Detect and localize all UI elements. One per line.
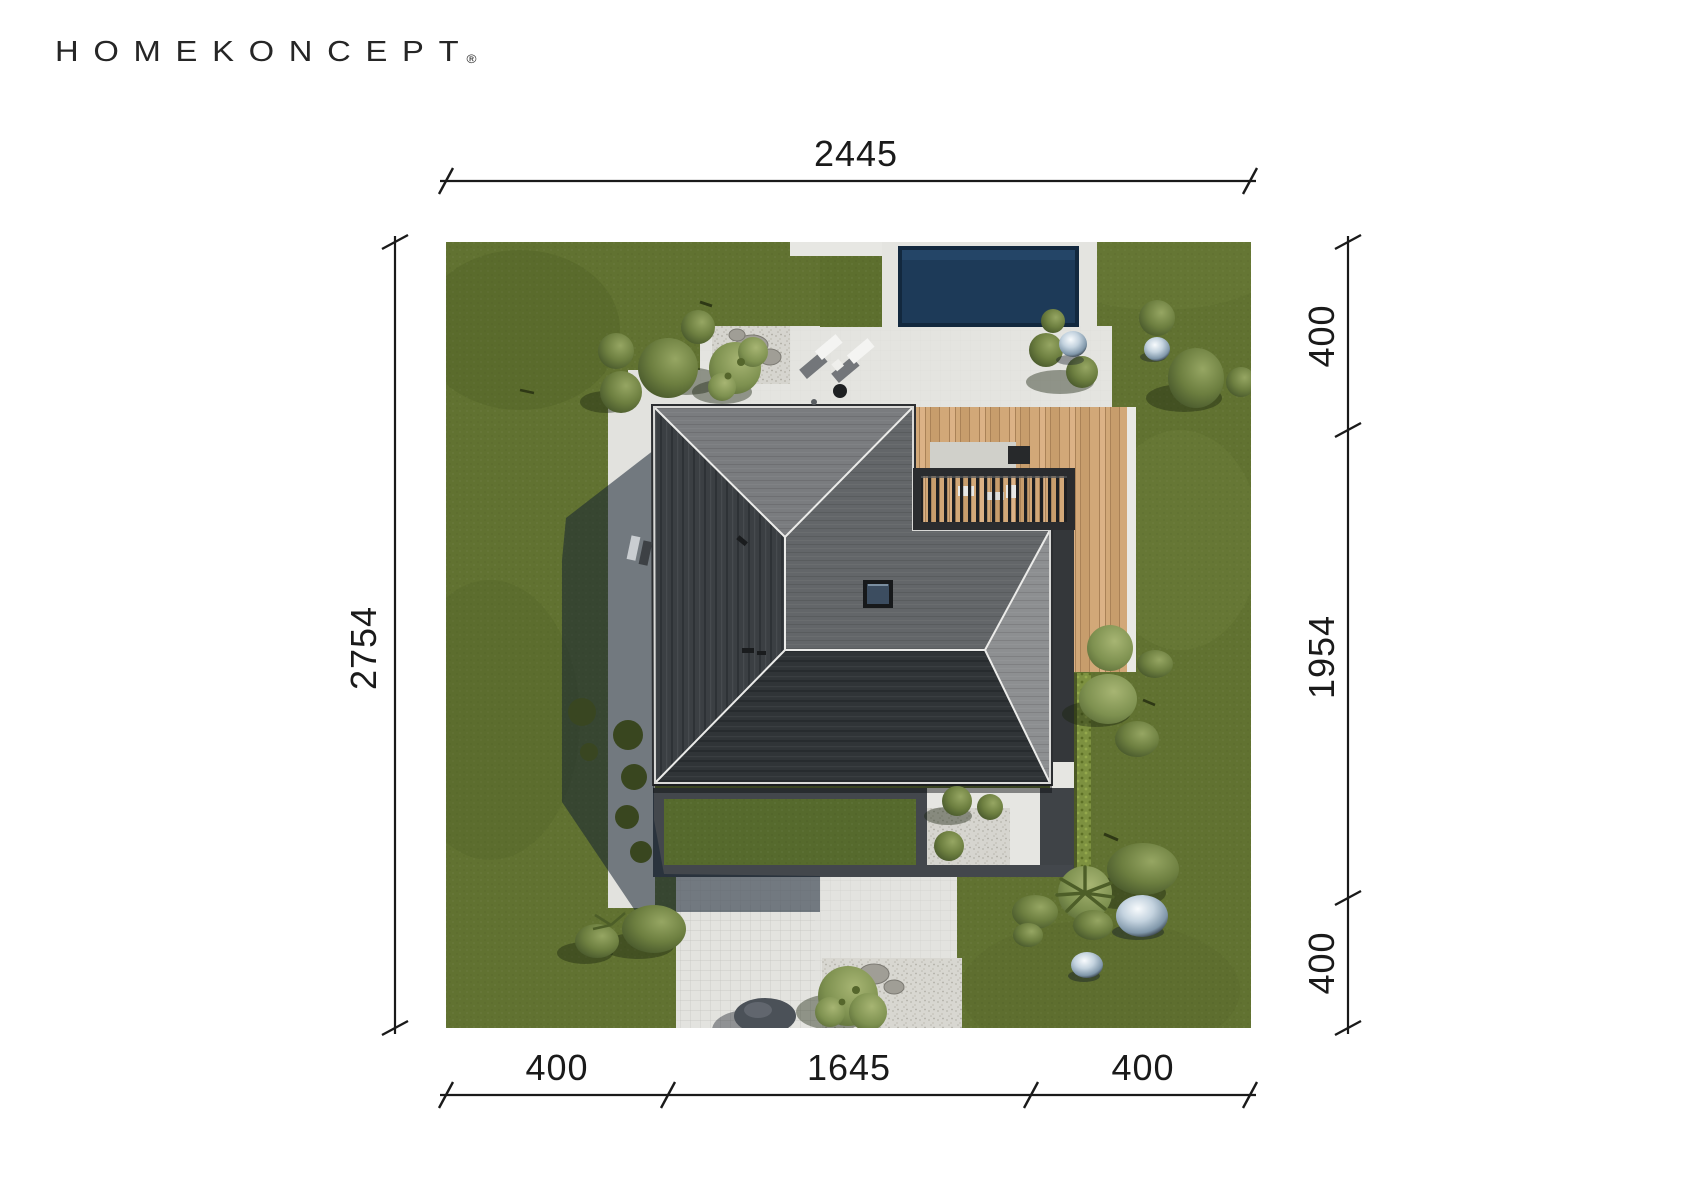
pergola (913, 468, 1075, 530)
dimension-label-left: 2754 (343, 606, 384, 690)
chrome-sphere (1144, 337, 1170, 361)
chrome-sphere (1059, 331, 1087, 357)
dimension-top: 2445 (439, 133, 1257, 194)
dimension-label-right-3: 400 (1301, 931, 1342, 994)
roof-vent (742, 648, 754, 653)
dimension-label-bottom-1: 400 (525, 1047, 588, 1088)
chrome-sphere (1071, 952, 1103, 978)
dimension-label-bottom-3: 400 (1111, 1047, 1174, 1088)
courtyard-frame (653, 788, 1074, 877)
terrace-wall-gap (1050, 762, 1074, 788)
dimension-bottom: 400 1645 400 (439, 1047, 1257, 1108)
aerial-render (400, 210, 1280, 1060)
dimension-left: 2754 (343, 235, 408, 1035)
dimension-right: 400 1954 400 (1301, 235, 1361, 1035)
brand-logo-text: HOMEKONCEPT (55, 36, 473, 68)
fire-bowl (833, 384, 847, 398)
dimension-label-right-2: 1954 (1301, 615, 1342, 699)
roof-vent (757, 651, 766, 655)
dimension-label-right-1: 400 (1301, 304, 1342, 367)
dimension-label-top: 2445 (814, 133, 898, 174)
site-plan-figure: 2445 2754 400 1954 400 400 1645 40 (0, 0, 1698, 1200)
brand-logo: HOMEKONCEPT® (55, 36, 483, 69)
site-plan-page: HOMEKONCEPT® (0, 0, 1698, 1200)
registered-mark-icon: ® (467, 52, 477, 66)
dimension-label-bottom-2: 1645 (807, 1047, 891, 1088)
skylight (863, 580, 893, 608)
chrome-sphere (1116, 895, 1168, 937)
